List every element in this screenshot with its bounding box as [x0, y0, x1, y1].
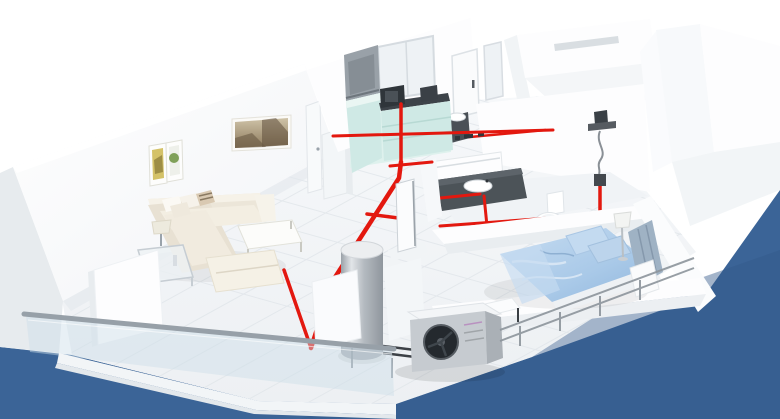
small-window [484, 42, 503, 100]
apartment-scene [0, 0, 780, 419]
apartment-3d-render [0, 0, 780, 419]
unit-side [485, 311, 503, 364]
door-knob [316, 147, 319, 150]
wall-painting [232, 115, 291, 151]
bathroom-door-handle [472, 80, 475, 88]
shower-mixer [594, 174, 606, 186]
decor-bottle [173, 255, 177, 266]
microwave-door [385, 91, 398, 102]
tank-front-wall [312, 270, 361, 349]
lamp-shade [614, 212, 631, 228]
bathroom-door [452, 49, 479, 118]
sink-faucet [486, 180, 489, 183]
coffee-machine [420, 85, 438, 102]
hallway-door [306, 101, 322, 193]
wall-photo-frames [149, 140, 183, 186]
